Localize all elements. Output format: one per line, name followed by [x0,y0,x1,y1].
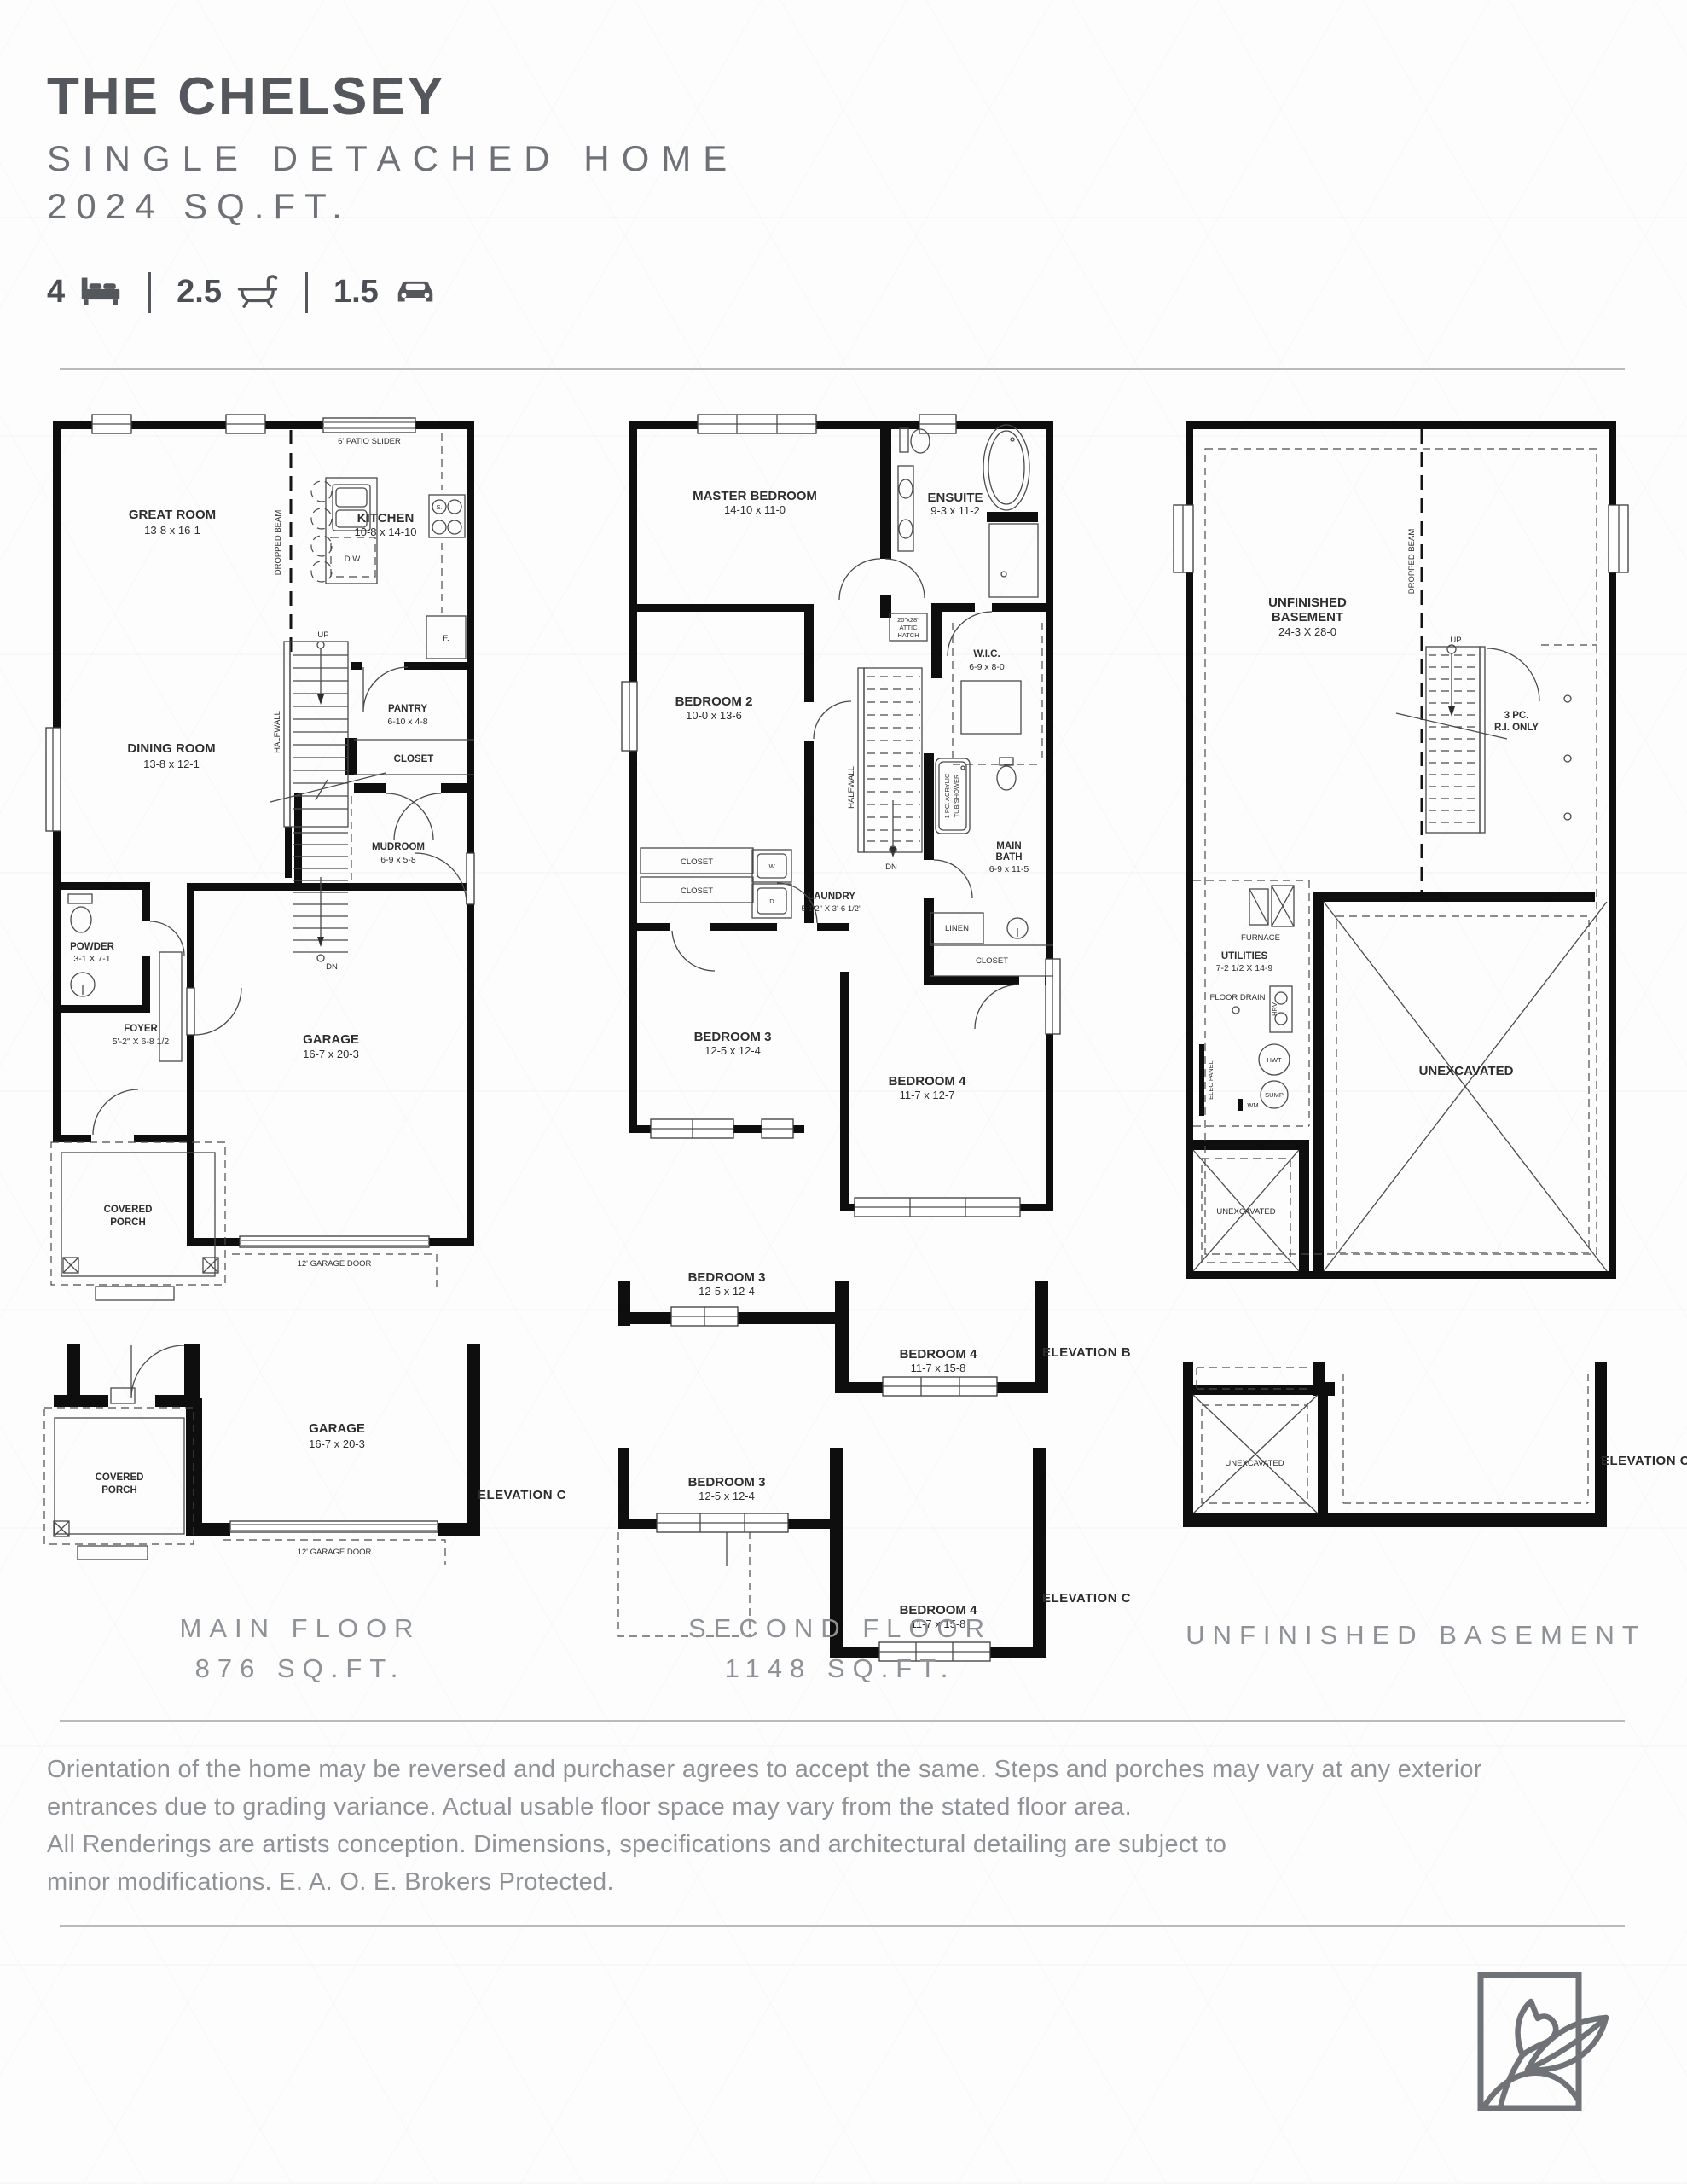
label-fridge: F. [443,634,449,643]
variant-labels: GARAGE 16-7 x 20-3 COVERED PORCH 12' GAR… [96,1421,567,1557]
label-patio-slider: 6' PATIO SLIDER [338,437,401,446]
label-laundry-dims: 5 1/2" X 3'-6 1/2" [802,904,862,914]
disclaimer-line-3: All Renderings are artists conception. D… [47,1826,1482,1863]
fox-leaf-logo [1478,1972,1615,2118]
label-linen: LINEN [945,924,969,933]
label-bedroom3-dims: 12-5 x 12-4 [704,1044,761,1057]
label-great-room: GREAT ROOM [129,508,216,522]
label-halfwall: HALFWALL [273,711,282,753]
label-bedroom4-dims: 11-7 x 15-8 [911,1362,966,1374]
label-hrv: HRV [1271,1002,1278,1016]
label-ensuite-dims: 9-3 x 11-2 [930,504,980,517]
label-dropped-beam: DROPPED BEAM [274,510,283,576]
label-elec-panel: ELEC PANEL [1207,1060,1215,1100]
main-floor-plan: 6' PATIO SLIDER DROPPED BEAM GREAT ROOM … [44,399,522,1316]
label-dining-room-dims: 13-8 x 12-1 [143,758,200,770]
label-dryer: D [769,897,774,905]
basement-elevation-c: UNEXCAVATED ELEVATION C [1173,1356,1687,1553]
label-utilities: UTILITIES [1221,951,1268,961]
label-main-bath-2: BATH [995,852,1022,863]
stats-separator [305,272,308,313]
disclaimer-line-2: entrances due to grading variance. Actua… [47,1788,1482,1826]
label-dn: DN [885,863,897,872]
label-attic-size: 20"x28" [897,616,919,624]
main-floor-caption-area: 876 SQ.FT. [44,1648,556,1688]
label-bedroom3: BEDROOM 3 [688,1270,766,1285]
label-bedroom4: BEDROOM 4 [889,1074,967,1089]
cars-count: 1.5 [333,274,379,311]
footer-divider-bottom [60,1925,1625,1927]
disclaimer: Orientation of the home may be reversed … [47,1751,1482,1901]
label-garage-dims: 16-7 x 20-3 [309,1438,365,1450]
label-master-bedroom: MASTER BEDROOM [693,489,817,503]
second-floor-caption-title: SECOND FLOOR [601,1608,1079,1648]
disclaimer-line-4: minor modifications. E. A. O. E. Brokers… [47,1863,1482,1901]
label-dining-room: DINING ROOM [127,741,215,756]
label-garage-door: 12' GARAGE DOOR [298,1259,372,1269]
bed-icon [78,273,123,311]
stats-row: 4 2.5 1.5 [47,271,438,313]
label-closet: CLOSET [394,754,434,764]
label-unexcavated: UNEXCAVATED [1419,1064,1514,1078]
label-floor-drain: FLOOR DRAIN [1210,993,1266,1002]
label-tub-line2: TUB/SHOWER [953,774,960,817]
label-porch: PORCH [101,1485,137,1496]
label-kitchen-dims: 10-8 x 14-10 [355,526,417,538]
label-bedroom3: BEDROOM 3 [688,1475,766,1490]
label-dn: DN [326,962,338,972]
beds-count: 4 [47,274,65,311]
label-washer: W [768,863,775,870]
main-floor-fixtures [51,430,474,1300]
label-sink: S. [436,503,442,511]
header-divider [60,368,1625,370]
flyer-page: THE CHELSEY SINGLE DETACHED HOME 2024 SQ… [0,0,1687,2184]
baths-count: 2.5 [177,274,222,311]
second-floor-labels: MASTER BEDROOM 14-10 x 11-0 ENSUITE 9-3 … [675,489,1029,1101]
page-title: THE CHELSEY [47,67,445,127]
label-elevation-b: ELEVATION B [1042,1345,1131,1360]
main-floor-windows [46,415,474,904]
variant-labels: BEDROOM 3 12-5 x 12-4 BEDROOM 4 11-7 x 1… [688,1475,1131,1630]
main-floor-caption: MAIN FLOOR 876 SQ.FT. [44,1608,556,1688]
basement-walls [1186,421,1616,1279]
label-ensuite: ENSUITE [927,491,983,505]
label-attic-hatch: HATCH [897,631,919,639]
label-covered: COVERED [104,1205,153,1215]
label-closet: CLOSET [681,886,713,896]
label-bedroom2: BEDROOM 2 [675,694,753,709]
label-up: UP [317,630,328,640]
label-basement-dims: 24-3 X 28-0 [1278,625,1336,638]
label-porch: PORCH [110,1217,146,1228]
main-floor-labels: 6' PATIO SLIDER DROPPED BEAM GREAT ROOM … [70,437,449,1269]
label-great-room-dims: 13-8 x 16-1 [144,524,200,537]
bathtub-icon [235,271,280,313]
label-laundry: LAUNDRY [808,892,855,902]
label-unexcavated: UNEXCAVATED [1225,1459,1284,1468]
label-mudroom: MUDROOM [372,842,425,852]
label-basement-2: BASEMENT [1272,610,1343,624]
second-floor-elevation-b: BEDROOM 3 12-5 x 12-4 BEDROOM 4 11-7 x 1… [618,1228,1215,1412]
main-floor-elevation-c: GARAGE 16-7 x 20-3 COVERED PORCH 12' GAR… [44,1344,573,1583]
label-closet: CLOSET [681,857,713,867]
basement-caption: UNFINISHED BASEMENT [1134,1615,1687,1655]
label-bedroom3-dims: 12-5 x 12-4 [699,1285,755,1298]
label-wm: WM [1247,1101,1258,1109]
label-main-bath-dims: 6-9 x 11-5 [989,864,1029,874]
label-bedroom3: BEDROOM 3 [694,1030,772,1044]
variant-fixtures [44,1345,445,1565]
variant-labels: UNEXCAVATED ELEVATION C [1225,1454,1687,1468]
second-floor-caption: SECOND FLOOR 1148 SQ.FT. [601,1608,1079,1688]
label-main-bath-1: MAIN [996,841,1021,851]
label-powder: POWDER [70,942,114,952]
label-elevation-c: ELEVATION C [1042,1591,1131,1606]
second-floor-caption-area: 1148 SQ.FT. [601,1648,1079,1688]
label-powder-dims: 3-1 X 7-1 [73,954,110,964]
label-bedroom3-dims: 12-5 x 12-4 [699,1490,755,1502]
label-closet: CLOSET [976,956,1008,966]
label-bedroom4: BEDROOM 4 [900,1347,978,1362]
stats-separator [148,272,151,313]
label-bedroom2-dims: 10-0 x 13-6 [686,709,742,722]
basement-plan: DROPPED BEAM UNFINISHED BASEMENT 24-3 X … [1173,399,1672,1316]
second-floor-plan: MASTER BEDROOM 14-10 x 11-0 ENSUITE 9-3 … [618,399,1083,1252]
main-floor-caption-title: MAIN FLOOR [44,1608,556,1648]
label-dropped-beam: DROPPED BEAM [1407,529,1417,595]
label-garage-dims: 16-7 x 20-3 [303,1048,359,1060]
label-covered: COVERED [96,1472,144,1483]
label-3pc-2: R.I. ONLY [1494,723,1539,733]
label-foyer: FOYER [124,1024,158,1034]
label-foyer-dims: 5'-2" X 6-8 1/2 [113,1037,170,1047]
label-tub-line1: 1 PC. ACRYLIC [943,773,951,818]
label-up: UP [1450,636,1461,645]
label-wic: W.I.C. [973,649,1000,659]
label-master-bedroom-dims: 14-10 x 11-0 [724,503,786,516]
label-furnace: FURNACE [1241,933,1280,943]
car-icon [392,272,438,312]
label-basement-1: UNFINISHED [1268,595,1347,610]
total-area: 2024 SQ.FT. [47,186,351,227]
label-hwt: HWT [1267,1056,1281,1064]
footer-divider-top [60,1720,1625,1722]
basement-windows [1174,505,1628,572]
label-elevation-c: ELEVATION C [478,1488,566,1502]
label-3pc-1: 3 PC. [1504,711,1529,721]
disclaimer-line-1: Orientation of the home may be reversed … [47,1751,1482,1788]
label-sump: SUMP [1265,1091,1284,1099]
label-attic: ATTIC [899,624,918,631]
variant-walls [618,1281,1048,1393]
home-type-subtitle: SINGLE DETACHED HOME [47,138,739,179]
variant-walls [54,1344,480,1536]
label-bedroom4-dims: 11-7 x 12-7 [900,1089,955,1101]
label-utilities-dims: 7-2 1/2 X 14-9 [1216,963,1273,973]
main-floor-walls [53,421,474,1246]
label-garage: GARAGE [309,1421,365,1436]
label-garage-door: 12' GARAGE DOOR [298,1548,372,1557]
label-dishwasher: D.W. [345,555,362,564]
label-wic-dims: 6-9 x 8-0 [969,662,1005,672]
label-pantry-dims: 6-10 x 4-8 [387,717,427,727]
variant-walls [1183,1362,1607,1527]
label-elevation-c: ELEVATION C [1601,1454,1687,1468]
label-kitchen: KITCHEN [357,511,415,526]
basement-caption-title: UNFINISHED BASEMENT [1134,1615,1687,1655]
label-pantry: PANTRY [388,704,427,714]
basement-labels: DROPPED BEAM UNFINISHED BASEMENT 24-3 X … [1207,529,1539,1217]
label-garage: GARAGE [303,1032,359,1047]
label-mudroom-dims: 6-9 x 5-8 [380,855,416,865]
label-halfwall: HALFWALL [847,766,856,809]
label-unexcavated-small: UNEXCAVATED [1216,1207,1275,1217]
